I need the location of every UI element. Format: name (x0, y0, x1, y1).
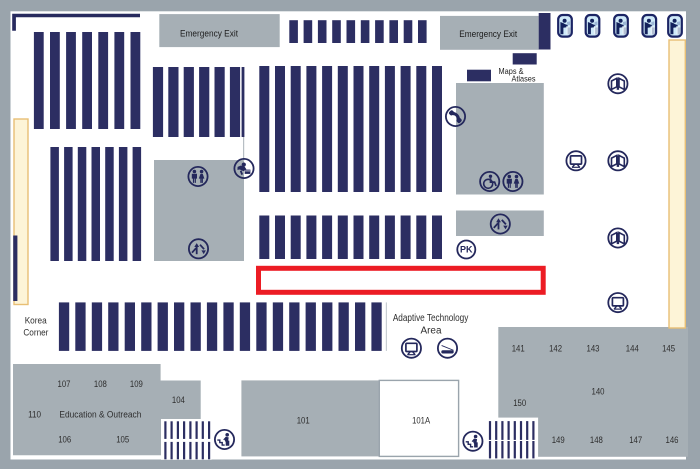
svg-text:147: 147 (629, 435, 642, 445)
svg-text:143: 143 (587, 344, 600, 354)
svg-text:101A: 101A (412, 415, 430, 425)
svg-text:Adaptive Technology: Adaptive Technology (393, 313, 469, 324)
svg-text:Atlases: Atlases (512, 73, 536, 83)
svg-text:Area: Area (421, 326, 443, 337)
svg-text:142: 142 (549, 344, 562, 354)
svg-text:Emergency Exit: Emergency Exit (459, 29, 517, 40)
svg-text:105: 105 (116, 435, 129, 445)
svg-text:PK: PK (460, 245, 473, 255)
svg-text:140: 140 (592, 386, 605, 396)
svg-text:Education & Outreach: Education & Outreach (59, 409, 141, 419)
svg-text:150: 150 (513, 398, 526, 408)
svg-text:104: 104 (172, 395, 185, 405)
svg-text:106: 106 (58, 435, 71, 445)
svg-text:110: 110 (28, 409, 41, 419)
svg-text:145: 145 (662, 344, 675, 354)
svg-text:101: 101 (297, 415, 310, 425)
svg-text:141: 141 (512, 344, 525, 354)
svg-text:146: 146 (666, 435, 679, 445)
svg-text:108: 108 (94, 379, 107, 389)
svg-text:Korea: Korea (25, 314, 48, 325)
svg-text:107: 107 (58, 379, 71, 389)
svg-text:148: 148 (590, 435, 603, 445)
svg-text:144: 144 (626, 344, 639, 354)
svg-text:Corner: Corner (23, 327, 48, 338)
svg-text:149: 149 (552, 435, 565, 445)
svg-text:109: 109 (130, 379, 143, 389)
svg-text:Emergency Exit: Emergency Exit (180, 28, 238, 39)
